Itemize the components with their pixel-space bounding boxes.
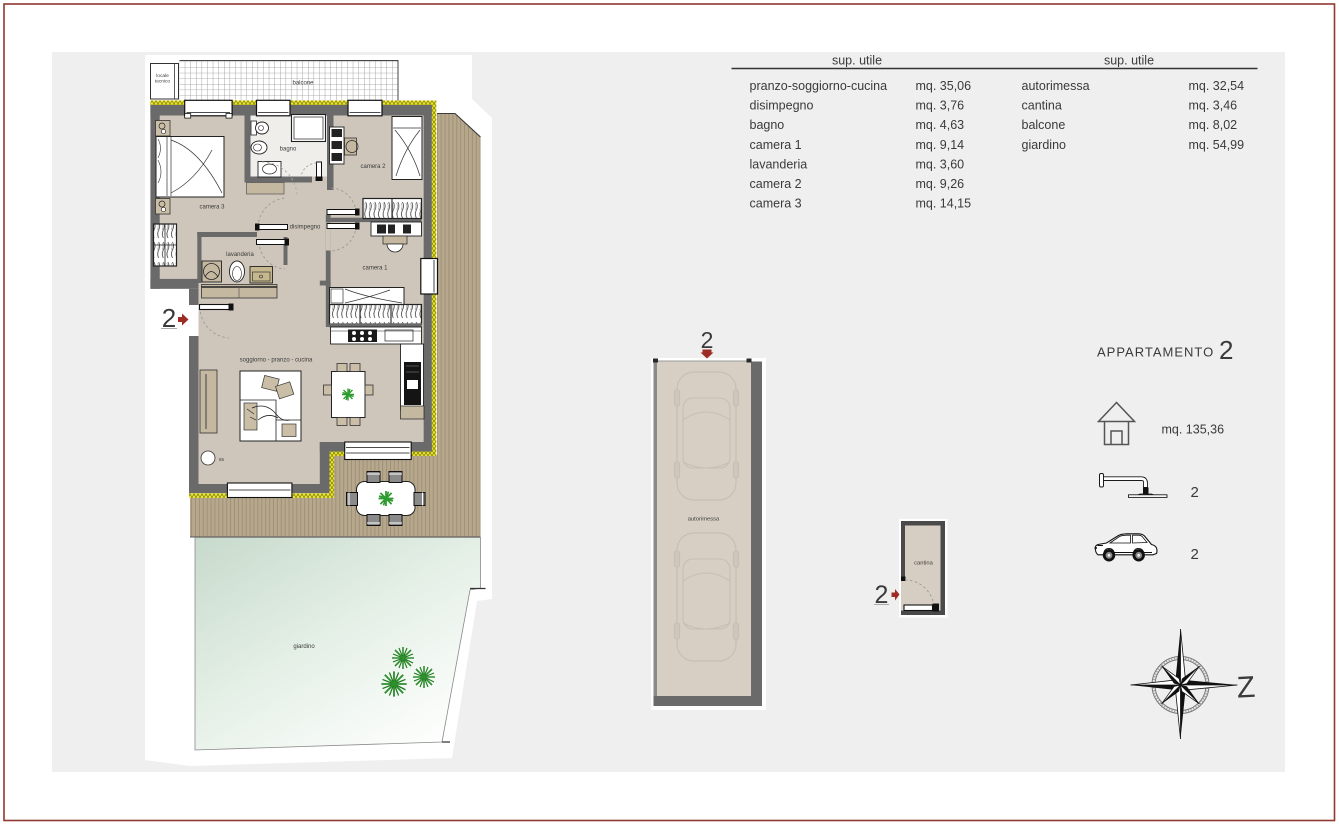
svg-text:balcone: balcone	[292, 81, 314, 87]
svg-text:cantina: cantina	[914, 561, 933, 567]
svg-text:2: 2	[1191, 484, 1199, 501]
svg-text:mq. 54,99: mq. 54,99	[1189, 138, 1245, 152]
svg-text:2: 2	[701, 327, 714, 353]
svg-text:autorimessa: autorimessa	[688, 517, 720, 523]
svg-text:lavanderia: lavanderia	[750, 157, 808, 171]
svg-text:camera 2: camera 2	[360, 164, 386, 170]
svg-text:bagno: bagno	[280, 147, 297, 153]
svg-text:disimpegno: disimpegno	[750, 99, 814, 113]
svg-text:mq. 8,02: mq. 8,02	[1189, 118, 1238, 132]
svg-text:lavanderia: lavanderia	[226, 252, 254, 258]
svg-text:mq. 35,06: mq. 35,06	[916, 79, 972, 93]
svg-text:camera 1: camera 1	[362, 266, 388, 272]
svg-text:mq. 3,60: mq. 3,60	[916, 157, 965, 171]
svg-text:tecnico: tecnico	[155, 79, 171, 85]
svg-text:2: 2	[1191, 546, 1199, 563]
svg-text:camera 3: camera 3	[199, 205, 225, 211]
svg-text:disimpegno: disimpegno	[290, 225, 321, 231]
svg-text:giardino: giardino	[293, 644, 315, 650]
svg-text:mq. 4,63: mq. 4,63	[916, 118, 965, 132]
svg-text:Z: Z	[1236, 671, 1256, 705]
svg-text:sup. utile: sup. utile	[832, 54, 882, 68]
svg-text:mq. 14,15: mq. 14,15	[916, 197, 972, 211]
svg-text:mq. 135,36: mq. 135,36	[1162, 423, 1225, 437]
svg-text:mq. 3,46: mq. 3,46	[1189, 99, 1238, 113]
svg-text:camera 2: camera 2	[750, 177, 802, 191]
svg-text:autorimessa: autorimessa	[1022, 79, 1090, 93]
svg-text:mq. 9,14: mq. 9,14	[916, 138, 965, 152]
svg-text:camera 3: camera 3	[750, 197, 802, 211]
svg-text:pranzo-soggiorno-cucina: pranzo-soggiorno-cucina	[750, 79, 888, 93]
svg-text:mq. 9,26: mq. 9,26	[916, 177, 965, 191]
svg-text:mq. 3,76: mq. 3,76	[916, 99, 965, 113]
svg-text:balcone: balcone	[1022, 118, 1066, 132]
svg-text:APPARTAMENTO: APPARTAMENTO	[1097, 345, 1214, 360]
svg-text:sup. utile: sup. utile	[1104, 54, 1154, 68]
svg-text:camera 1: camera 1	[750, 138, 802, 152]
svg-text:65: 65	[219, 457, 225, 462]
svg-text:soggiorno - pranzo - cucina: soggiorno - pranzo - cucina	[240, 358, 313, 364]
svg-text:locale: locale	[156, 73, 169, 79]
svg-text:bagno: bagno	[750, 118, 785, 132]
svg-text:giardino: giardino	[1022, 138, 1067, 152]
svg-text:cantina: cantina	[1022, 99, 1062, 113]
svg-text:mq. 32,54: mq. 32,54	[1189, 79, 1245, 93]
svg-text:2: 2	[1219, 335, 1233, 365]
